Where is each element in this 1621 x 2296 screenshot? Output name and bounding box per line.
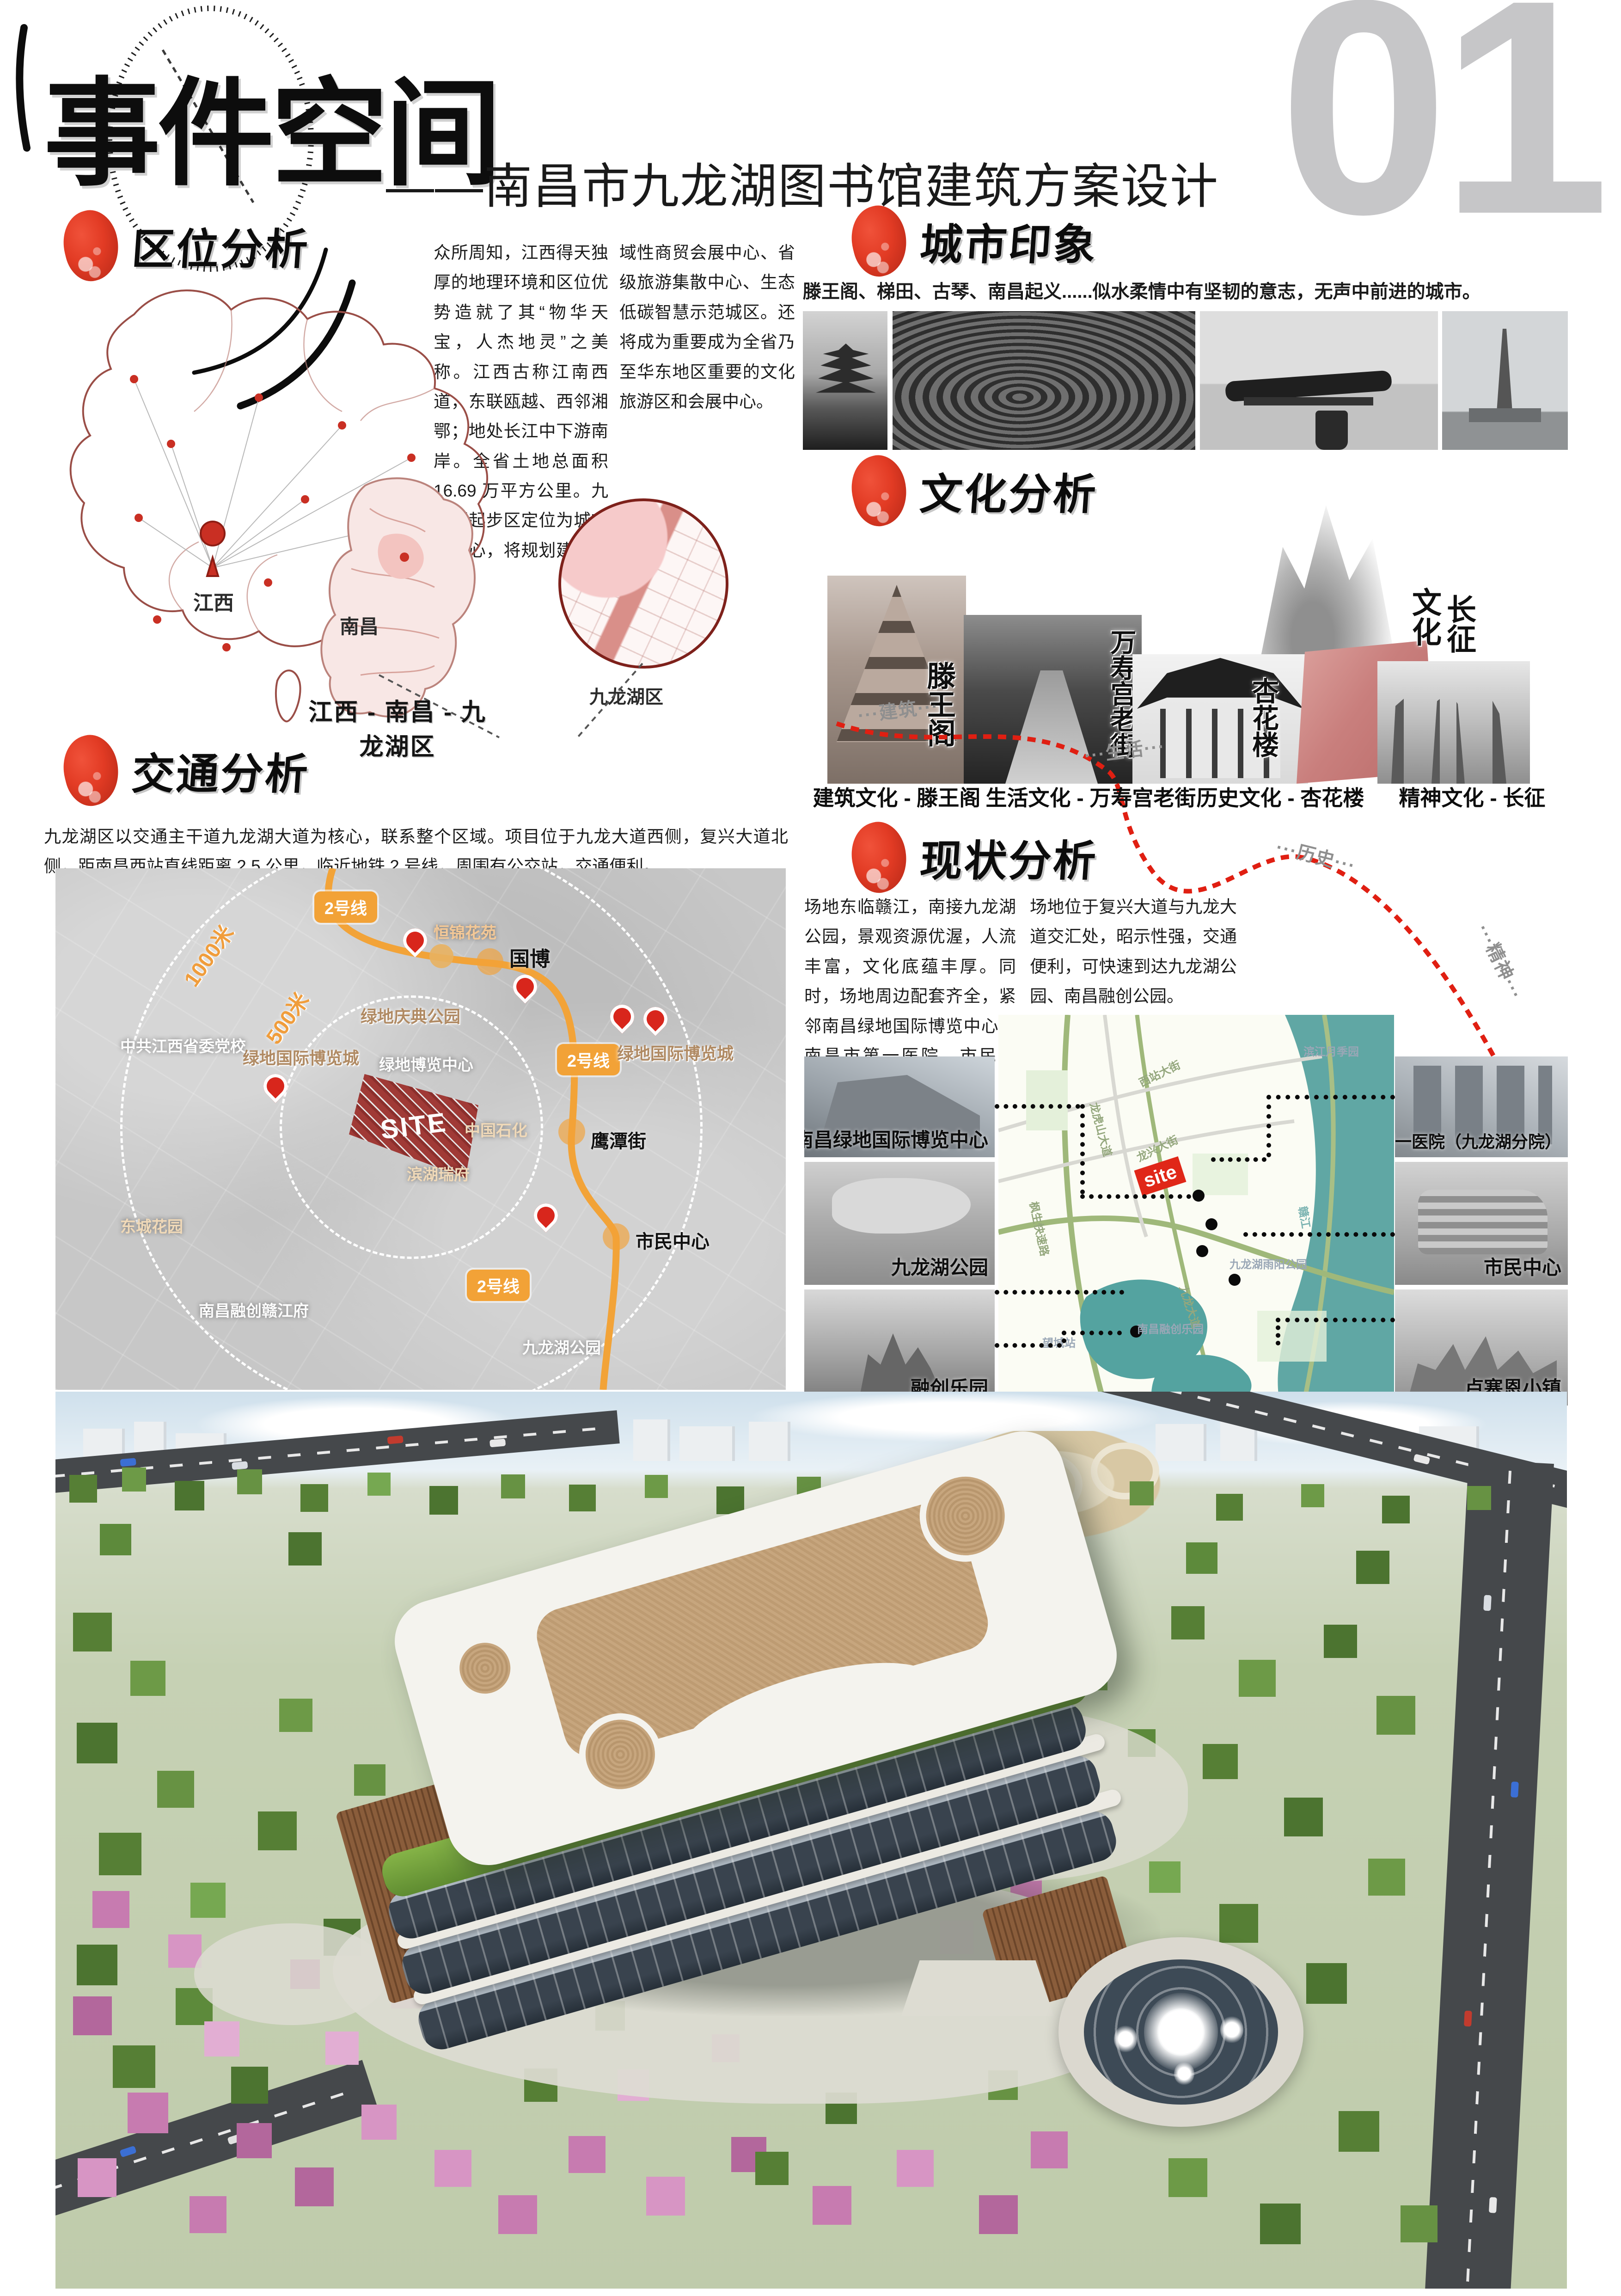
map-label-binhu: 滨湖瑞府 (407, 1162, 470, 1185)
vmap-label-binjiang: 滨江月季园 (1303, 1043, 1359, 1059)
map-label-qingdian: 绿地庆典公园 (361, 1003, 460, 1027)
section-city-title: 城市印象 (918, 210, 1100, 272)
status-photo-expo: 南昌绿地国际博览中心 (804, 1056, 995, 1157)
vmap-dot (1193, 1190, 1205, 1202)
station-yingtanjie-circle (558, 1118, 585, 1145)
lake-silhouette (832, 1178, 971, 1234)
connector (1062, 1331, 1122, 1335)
monument-silhouette (1497, 329, 1512, 412)
culture-caption-1: 建筑文化 - 滕王阁 (800, 781, 994, 812)
presentation-board: 事件空间 ——南昌市九龙湖图书馆建筑方案设计 01 区位分析 众所周知，江西得天… (0, 0, 1621, 2296)
section-culture-header: 文化分析 (852, 455, 1098, 526)
ink-blob-icon (844, 450, 914, 531)
status-photo-label: 九龙湖公园 (891, 1252, 988, 1280)
map-label-guobo: 国博 (509, 942, 550, 972)
table-silhouette (1244, 397, 1373, 405)
aerial-rendering (55, 1392, 1567, 2289)
line2-badge-top: 2号线 (314, 891, 377, 923)
road-right-vertical (1425, 1459, 1554, 2289)
connector (1080, 1104, 1085, 1194)
roof-skylight (453, 1637, 516, 1700)
map-label-dangxiao: 中共江西省委党校 (120, 1034, 246, 1056)
section-city-header: 城市印象 (852, 206, 1098, 276)
connector (995, 1290, 1124, 1295)
status-photo-label: 南昌市第一医院（九龙湖分院） (1395, 1129, 1561, 1153)
fountain-jet (1174, 2062, 1194, 2085)
city-photo-monument (1442, 311, 1568, 450)
status-photo-sunac: 融创乐园 (804, 1289, 995, 1406)
road-bottom-left (55, 2060, 379, 2219)
location-paragraph-2: 域性商贸会展中心、省级旅游集散中心、生态低碳智慧示范城区。还将成为重要成为全省乃… (619, 238, 795, 417)
monument-base (1469, 408, 1541, 422)
vmap-label-yuyang-park: 九龙湖雨阳公园 (1230, 1255, 1307, 1271)
connector (995, 1104, 1080, 1109)
fountain-jet (1220, 2016, 1243, 2044)
ink-blob-icon (844, 816, 914, 898)
pagoda-silhouette (816, 344, 876, 408)
label-jiangxi: 江西 (193, 586, 234, 616)
map-label-hengjin: 恒锦花苑 (434, 920, 496, 943)
incense-silhouette (1315, 411, 1348, 450)
map-label-bolancheng-2: 绿地国际博览城 (617, 1040, 734, 1064)
line2-badge-bottom: 2号线 (467, 1270, 530, 1301)
city-caption: 滕王阁、梯田、古琴、南昌起义......似水柔情中有坚韧的意志，无声中前进的城市… (803, 276, 1481, 303)
board-number: 01 (1279, 0, 1602, 260)
calligraphy-changzheng-right: 长征 (1437, 594, 1480, 653)
station-shimin-circle (603, 1223, 630, 1250)
city-photo-terraces (893, 311, 1195, 450)
civic-building (1418, 1190, 1548, 1254)
status-photo-hospital: 南昌市第一医院（九龙湖分院） (1395, 1056, 1568, 1157)
vmap-dot (1196, 1245, 1208, 1257)
section-traffic-header: 交通分析 (64, 735, 310, 805)
map-label-rongchuang: 南昌融创赣江府 (199, 1298, 309, 1321)
status-photo-civic-center: 市民中心 (1395, 1162, 1568, 1285)
vmap-dot (1205, 1218, 1217, 1230)
distant-building (679, 1426, 735, 1461)
map-label-shimin: 市民中心 (636, 1227, 710, 1253)
connector (1276, 1318, 1280, 1345)
traffic-map: SITE 2号线 2号线 2号线 恒锦花苑 国博 绿地庆典公园 500米 100… (55, 868, 786, 1390)
vmap-label-sunac-park: 南昌融创乐园 (1137, 1320, 1204, 1336)
connector (1211, 1157, 1266, 1162)
city-photo-tengwangge (803, 311, 887, 450)
line2-badge-mid: 2号线 (557, 1044, 620, 1075)
location-caption: 江西 - 南昌 - 九龙湖区 (296, 693, 499, 762)
status-photo-jiulonghu-park: 九龙湖公园 (804, 1162, 995, 1285)
culture-caption-2: 生活文化 - 万寿宫老街 (971, 781, 1211, 812)
distant-building (633, 1419, 670, 1461)
fountain-jet (1114, 2025, 1137, 2053)
station-guobo-circle (477, 948, 503, 975)
ink-blob-icon (844, 200, 914, 282)
fountain-plaza (1058, 1937, 1303, 2127)
vmap-dot (1229, 1274, 1241, 1286)
ink-blob-icon (56, 730, 126, 811)
map-label-yingtanjie: 鹰潭街 (591, 1126, 646, 1153)
entrance-steps (901, 1960, 1054, 2016)
site-label: SITE (379, 1106, 449, 1145)
connector (1080, 1194, 1191, 1199)
connector (995, 1343, 1062, 1348)
amphitheater-ring (1091, 1443, 1159, 1499)
status-photo-label: 南昌绿地国际博览中心 (804, 1124, 988, 1153)
connector (1276, 1318, 1395, 1322)
connector (1266, 1095, 1395, 1099)
section-culture-title: 文化分析 (918, 460, 1100, 522)
fountain-jets (1144, 1993, 1218, 2071)
section-status-title: 现状分析 (918, 827, 1100, 888)
section-status-header: 现状分析 (852, 822, 1098, 892)
section-traffic-title: 交通分析 (130, 740, 312, 801)
distant-building (749, 1422, 790, 1461)
library-building (356, 1498, 1216, 2053)
city-photo-guqin (1200, 311, 1438, 450)
status-photo-lucerne: 卢塞恩小镇 (1395, 1289, 1568, 1406)
connector (1243, 1232, 1395, 1237)
status-paragraph-2: 场地位于复兴大道与九龙大道交汇处，昭示性强，交通便利，可快速到达九龙湖公园、南昌… (1030, 892, 1237, 1012)
status-photo-label: 市民中心 (1484, 1252, 1561, 1280)
map-label-sinopec: 中国石化 (465, 1118, 527, 1141)
culture-caption-3: 历史文化 - 杏花楼 (1179, 781, 1382, 812)
map-label-dongcheng: 东城花园 (120, 1214, 183, 1237)
map-label-bolan-center: 绿地博览中心 (379, 1052, 473, 1075)
map-label-jiulonghu-park: 九龙湖公园 (522, 1335, 601, 1358)
culture-caption-4: 精神文化 - 长征 (1380, 781, 1565, 812)
connector (1266, 1095, 1271, 1157)
map-label-bolancheng: 绿地国际博览城 (243, 1045, 359, 1069)
culture-ink-mountain (1230, 497, 1396, 663)
